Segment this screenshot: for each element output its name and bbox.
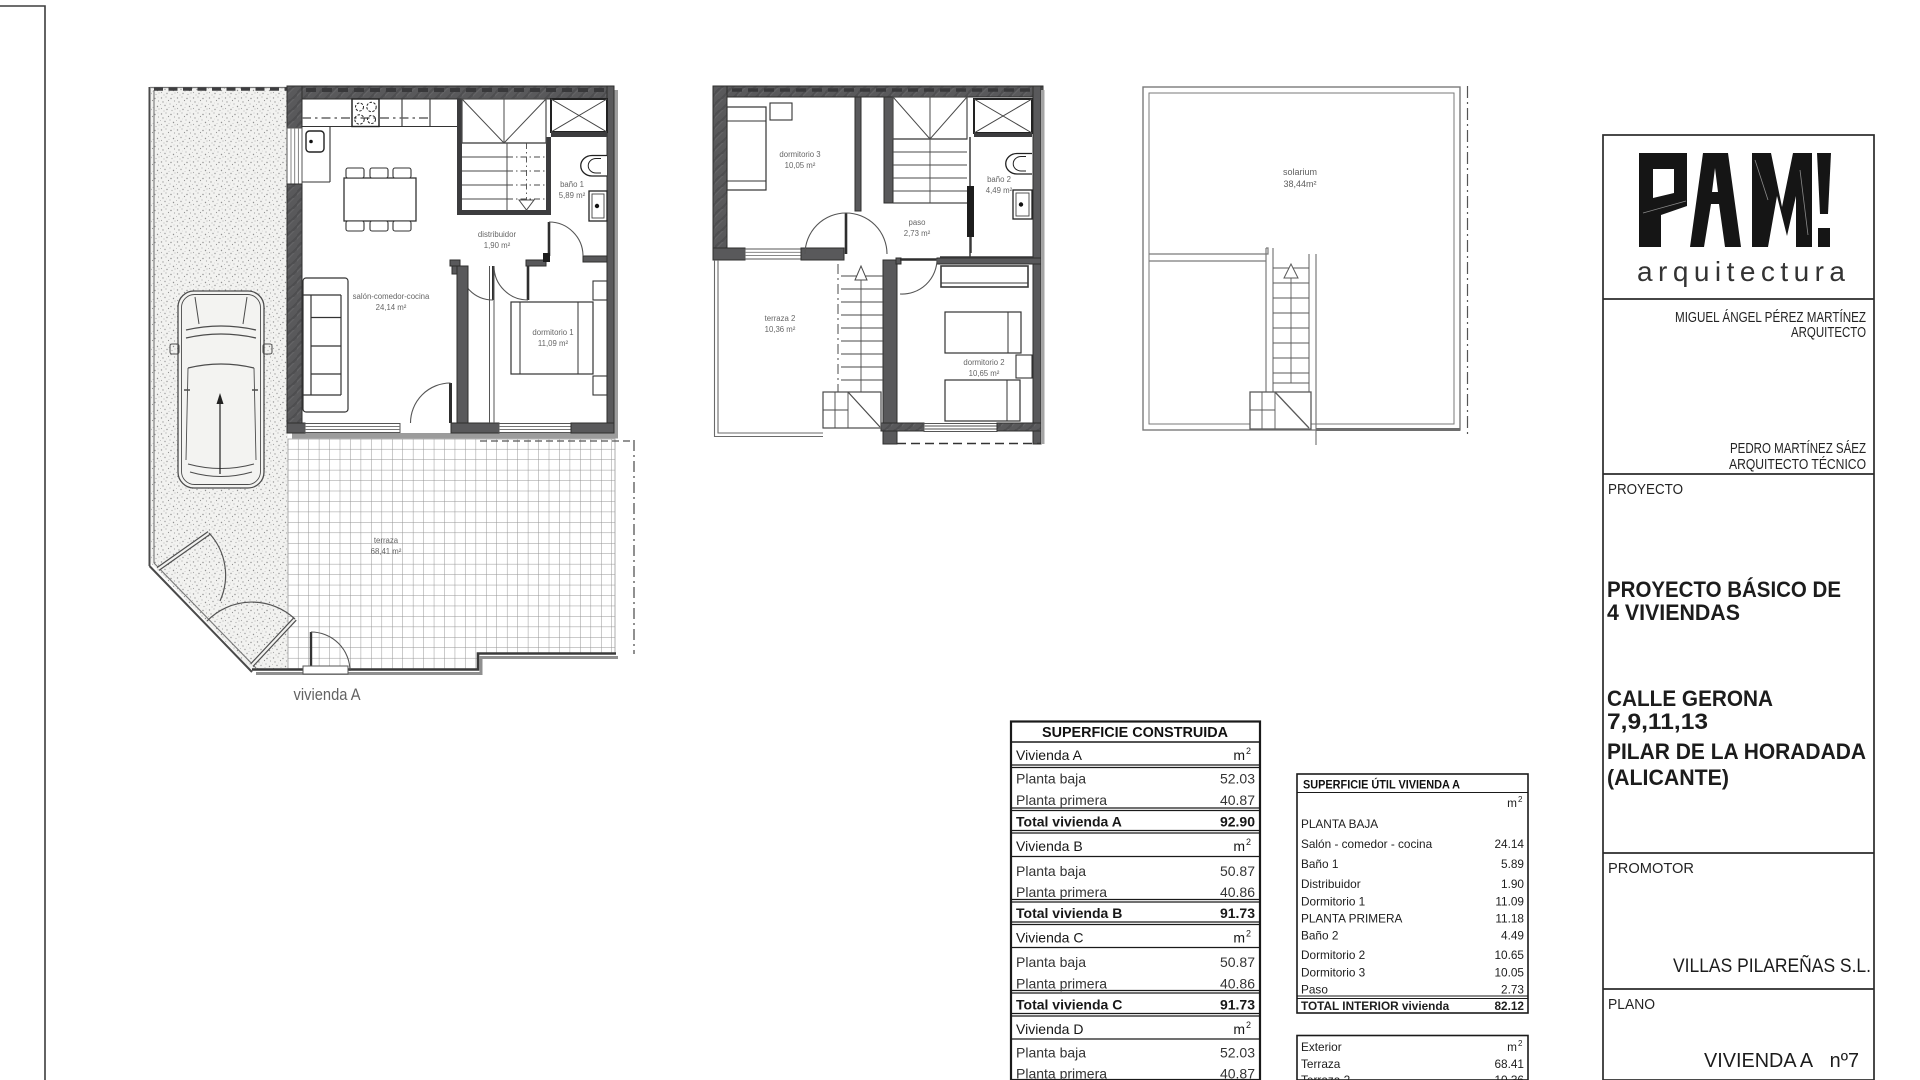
- svg-text:11.09: 11.09: [1495, 895, 1524, 909]
- svg-text:5.89: 5.89: [1501, 857, 1524, 871]
- svg-text:dormitorio 3: dormitorio 3: [779, 150, 820, 159]
- svg-text:24.14: 24.14: [1494, 837, 1524, 851]
- svg-text:dormitorio 2: dormitorio 2: [963, 358, 1004, 367]
- svg-text:10,36 m²: 10,36 m²: [765, 325, 796, 334]
- svg-text:50.87: 50.87: [1220, 954, 1255, 970]
- svg-text:dormitorio 1: dormitorio 1: [532, 328, 573, 337]
- svg-text:7,9,11,13: 7,9,11,13: [1607, 709, 1708, 734]
- svg-text:paso: paso: [909, 218, 927, 227]
- svg-text:baño 1: baño 1: [560, 180, 584, 189]
- svg-text:40.86: 40.86: [1220, 884, 1255, 900]
- svg-text:PILAR DE LA HORADADA: PILAR DE LA HORADADA: [1607, 739, 1866, 764]
- svg-text:Baño 1: Baño 1: [1301, 857, 1338, 871]
- svg-text:68.41: 68.41: [1494, 1057, 1524, 1071]
- svg-text:Planta primera: Planta primera: [1016, 792, 1107, 808]
- svg-text:2.73: 2.73: [1501, 983, 1524, 997]
- svg-text:1.90: 1.90: [1501, 877, 1524, 891]
- svg-text:Planta primera: Planta primera: [1016, 976, 1107, 992]
- svg-text:2,73 m²: 2,73 m²: [904, 229, 931, 238]
- svg-text:PLANTA BAJA: PLANTA BAJA: [1301, 817, 1378, 831]
- svg-text:SUPERFICIE CONSTRUIDA: SUPERFICIE CONSTRUIDA: [1042, 725, 1229, 741]
- svg-text:VILLAS PILAREÑAS S.L.: VILLAS PILAREÑAS S.L.: [1673, 953, 1871, 977]
- svg-text:ARQUITECTO: ARQUITECTO: [1791, 325, 1866, 341]
- svg-text:2: 2: [1246, 837, 1251, 847]
- svg-text:m: m: [1233, 930, 1245, 946]
- svg-text:solarium: solarium: [1283, 167, 1317, 177]
- svg-text:m: m: [1233, 747, 1245, 763]
- svg-text:Dormitorio 3: Dormitorio 3: [1301, 966, 1366, 980]
- svg-text:Planta primera: Planta primera: [1016, 1066, 1107, 1080]
- svg-text:Total vivienda A: Total vivienda A: [1016, 814, 1122, 830]
- svg-text:Dormitorio 1: Dormitorio 1: [1301, 895, 1365, 909]
- svg-text:Dormitorio 2: Dormitorio 2: [1301, 948, 1365, 962]
- svg-text:PLANO: PLANO: [1608, 996, 1655, 1013]
- svg-text:PROMOTOR: PROMOTOR: [1608, 860, 1694, 877]
- svg-text:52.03: 52.03: [1220, 1045, 1255, 1061]
- svg-text:m: m: [1507, 796, 1517, 810]
- svg-text:Exterior: Exterior: [1301, 1040, 1342, 1054]
- svg-text:baño 2: baño 2: [987, 175, 1011, 184]
- svg-text:Vivienda D: Vivienda D: [1016, 1021, 1083, 1037]
- svg-text:38,44m²: 38,44m²: [1283, 179, 1316, 189]
- svg-text:40.87: 40.87: [1220, 1066, 1255, 1080]
- svg-text:2: 2: [1246, 746, 1251, 756]
- svg-text:11.18: 11.18: [1495, 912, 1524, 926]
- svg-text:Terraza 2: Terraza 2: [1301, 1073, 1350, 1080]
- svg-text:2: 2: [1246, 1020, 1251, 1030]
- svg-text:salón-comedor-cocina: salón-comedor-cocina: [353, 292, 430, 301]
- svg-text:m: m: [1233, 838, 1245, 854]
- svg-text:4.49: 4.49: [1501, 929, 1524, 943]
- svg-text:Planta baja: Planta baja: [1016, 863, 1086, 879]
- svg-text:10.36: 10.36: [1494, 1073, 1524, 1080]
- svg-text:10,65 m²: 10,65 m²: [969, 369, 1000, 378]
- svg-text:10.05: 10.05: [1494, 966, 1524, 980]
- svg-text:PROYECTO: PROYECTO: [1608, 481, 1683, 498]
- svg-text:ARQUITECTO TÉCNICO: ARQUITECTO TÉCNICO: [1729, 456, 1866, 473]
- svg-text:Planta primera: Planta primera: [1016, 884, 1107, 900]
- svg-text:Distribuidor: Distribuidor: [1301, 877, 1361, 891]
- svg-text:50.87: 50.87: [1220, 863, 1255, 879]
- svg-text:2: 2: [1518, 795, 1523, 804]
- svg-text:CALLE GERONA: CALLE GERONA: [1607, 686, 1773, 711]
- svg-text:terraza: terraza: [374, 536, 399, 545]
- svg-text:2: 2: [1518, 1039, 1523, 1048]
- svg-text:2: 2: [1246, 929, 1251, 939]
- svg-text:52.03: 52.03: [1220, 771, 1255, 787]
- svg-text:Vivienda A: Vivienda A: [1016, 747, 1083, 763]
- svg-text:PEDRO MARTÍNEZ SÁEZ: PEDRO MARTÍNEZ SÁEZ: [1730, 440, 1866, 457]
- svg-text:91.73: 91.73: [1220, 997, 1255, 1013]
- svg-text:40.86: 40.86: [1220, 976, 1255, 992]
- svg-text:(ALICANTE): (ALICANTE): [1607, 765, 1729, 790]
- svg-text:10.65: 10.65: [1494, 948, 1524, 962]
- svg-text:PROYECTO BÁSICO DE: PROYECTO BÁSICO DE: [1607, 577, 1841, 602]
- svg-text:TOTAL INTERIOR vivienda: TOTAL INTERIOR vivienda: [1301, 999, 1450, 1013]
- svg-text:distribuidor: distribuidor: [478, 230, 517, 239]
- svg-text:m: m: [1233, 1021, 1245, 1037]
- svg-text:11,09 m²: 11,09 m²: [538, 339, 569, 348]
- svg-text:92.90: 92.90: [1220, 814, 1255, 830]
- svg-text:Vivienda B: Vivienda B: [1016, 838, 1083, 854]
- svg-text:5,89 m²: 5,89 m²: [559, 191, 586, 200]
- svg-text:Salón - comedor - cocina: Salón - comedor - cocina: [1301, 837, 1433, 851]
- svg-text:terraza 2: terraza 2: [765, 314, 796, 323]
- svg-text:VIVIENDA A nº7: VIVIENDA A nº7: [1704, 1049, 1859, 1072]
- svg-text:Total vivienda B: Total vivienda B: [1016, 905, 1122, 921]
- svg-text:82.12: 82.12: [1494, 999, 1524, 1013]
- svg-text:Terraza: Terraza: [1301, 1057, 1341, 1071]
- svg-text:4,49 m²: 4,49 m²: [986, 186, 1013, 195]
- svg-text:91.73: 91.73: [1220, 905, 1255, 921]
- svg-text:SUPERFICIE ÚTIL VIVIENDA A: SUPERFICIE ÚTIL VIVIENDA A: [1303, 777, 1460, 792]
- svg-text:m: m: [1507, 1040, 1517, 1054]
- svg-text:Planta baja: Planta baja: [1016, 771, 1086, 787]
- svg-text:Planta baja: Planta baja: [1016, 1045, 1086, 1061]
- svg-text:68,41 m²: 68,41 m²: [371, 547, 402, 556]
- svg-text:MIGUEL ÁNGEL PÉREZ MARTÍNEZ: MIGUEL ÁNGEL PÉREZ MARTÍNEZ: [1675, 309, 1866, 326]
- svg-text:vivienda A: vivienda A: [294, 686, 361, 704]
- svg-text:PLANTA PRIMERA: PLANTA PRIMERA: [1301, 912, 1403, 926]
- svg-text:Vivienda C: Vivienda C: [1016, 930, 1083, 946]
- svg-text:Planta baja: Planta baja: [1016, 954, 1086, 970]
- svg-text:1,90 m²: 1,90 m²: [484, 241, 511, 250]
- svg-text:Total vivienda C: Total vivienda C: [1016, 997, 1122, 1013]
- svg-text:4 VIVIENDAS: 4 VIVIENDAS: [1607, 600, 1740, 625]
- svg-text:10,05 m²: 10,05 m²: [785, 161, 816, 170]
- svg-text:Baño 2: Baño 2: [1301, 929, 1338, 943]
- svg-text:40.87: 40.87: [1220, 792, 1255, 808]
- svg-text:24,14 m²: 24,14 m²: [376, 303, 407, 312]
- svg-text:Paso: Paso: [1301, 983, 1328, 997]
